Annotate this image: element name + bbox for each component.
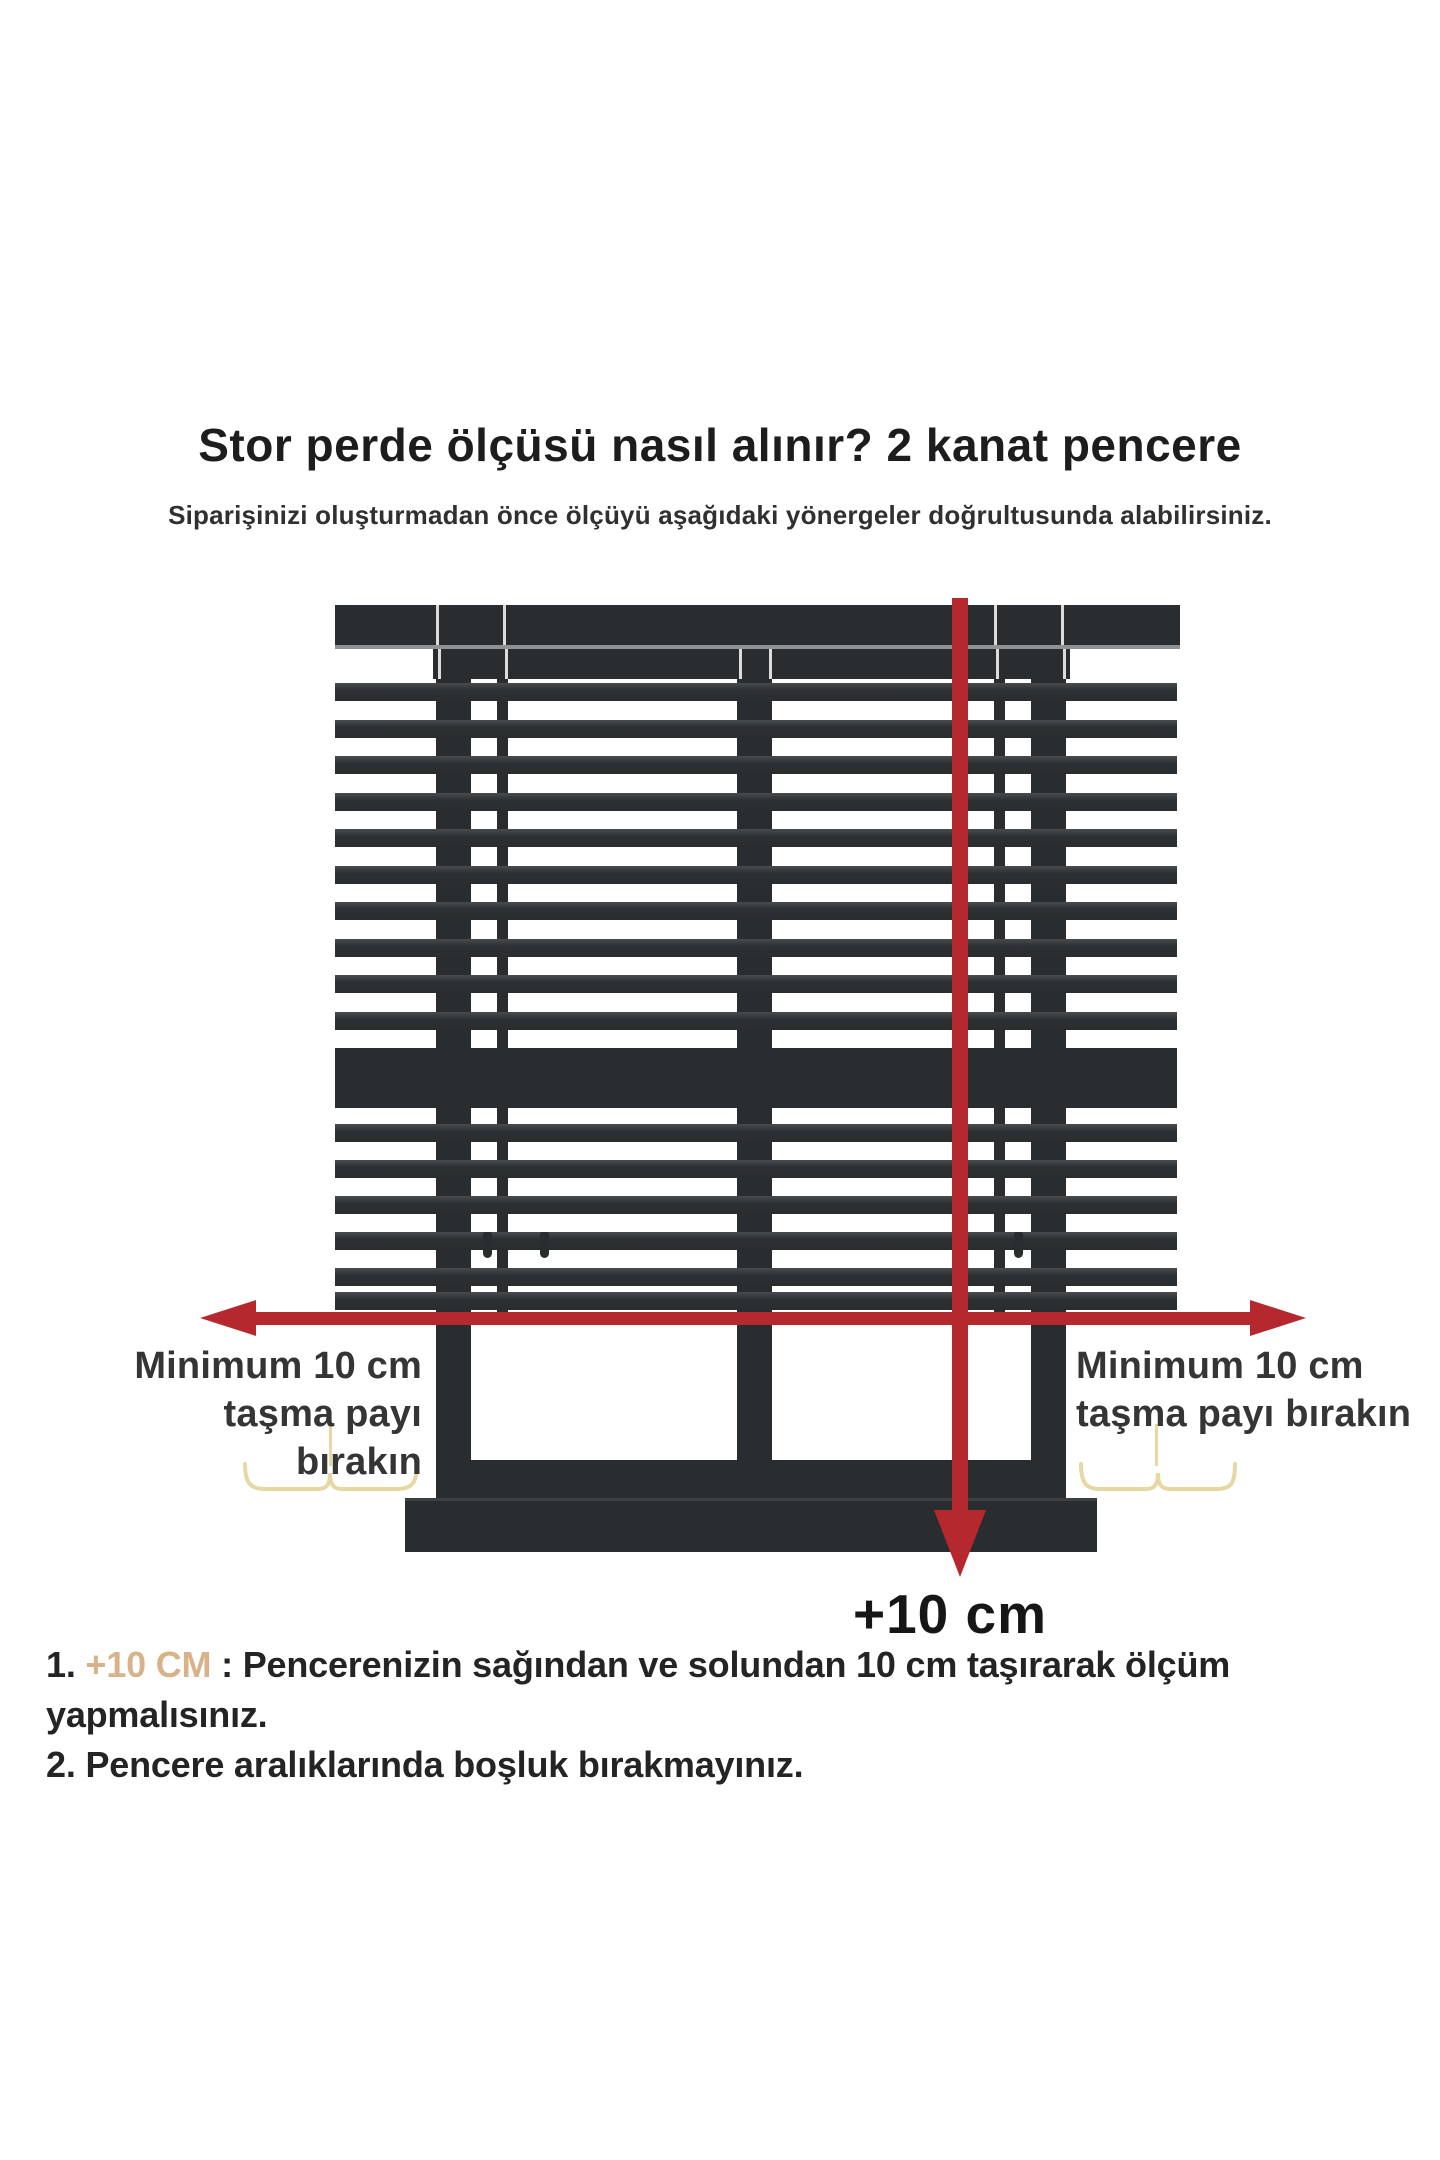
valance-slit: [994, 605, 997, 645]
blind-slat: [335, 902, 1177, 920]
blind-slat: [335, 683, 1177, 701]
blind-slat: [335, 829, 1177, 847]
note-line-1: 1. +10 CM : Pencerenizin sağından ve sol…: [46, 1640, 1416, 1740]
top-frame-slit: [769, 649, 772, 679]
blind-slat: [335, 1124, 1177, 1142]
right-overhang-label-line2: taşma payı bırakın: [1076, 1390, 1416, 1438]
blind-slat: [335, 1196, 1177, 1214]
note-1-highlight: +10 CM: [76, 1644, 212, 1685]
top-frame-slit: [739, 649, 742, 679]
note-line-2: 2. Pencere aralıklarında boşluk bırakmay…: [46, 1740, 1416, 1790]
blind-slat: [335, 1292, 1177, 1310]
height-measure-arrow: [952, 598, 968, 1512]
arrowhead-down-icon: [934, 1510, 986, 1577]
window-bottom-rail: [436, 1460, 1066, 1498]
note-2-number: 2.: [46, 1744, 76, 1785]
valance-slit: [436, 605, 439, 645]
blind-slat: [335, 939, 1177, 957]
right-overhang-label: Minimum 10 cm taşma payı bırakın: [1076, 1342, 1416, 1438]
left-overhang-label: Minimum 10 cm taşma payı bırakın: [92, 1342, 422, 1486]
valance-slit: [503, 605, 506, 645]
page-title: Stor perde ölçüsü nasıl alınır? 2 kanat …: [0, 418, 1440, 472]
top-frame-slit: [996, 649, 999, 679]
page-subtitle: Siparişinizi oluşturmadan önce ölçüyü aş…: [0, 500, 1440, 531]
top-frame-slit: [505, 649, 508, 679]
sash-meeting-rail-band: [335, 1048, 1177, 1108]
note-1-separator: :: [211, 1644, 242, 1685]
arrowhead-left-icon: [200, 1300, 256, 1336]
blind-slat: [335, 1232, 1177, 1250]
page: { "header": { "title": "Stor perde ölçüs…: [0, 0, 1440, 2160]
top-frame-slit: [438, 649, 441, 679]
blind-slat: [335, 793, 1177, 811]
blind-slat: [335, 1268, 1177, 1286]
blind-slat: [335, 720, 1177, 738]
blind-slat: [335, 1012, 1177, 1030]
slat-hook-icon: [483, 1232, 492, 1258]
top-frame-slit: [1063, 649, 1066, 679]
valance-slit: [1061, 605, 1064, 645]
note-1-number: 1.: [46, 1644, 76, 1685]
instruction-notes: 1. +10 CM : Pencerenizin sağından ve sol…: [46, 1640, 1416, 1790]
plus-10cm-label: +10 cm: [790, 1582, 1110, 1646]
left-overhang-label-line1: Minimum 10 cm: [92, 1342, 422, 1390]
blind-slat: [335, 866, 1177, 884]
window-sill: [405, 1498, 1097, 1552]
slat-hook-icon: [1014, 1232, 1023, 1258]
blind-slat: [335, 756, 1177, 774]
window-top-frame: [433, 649, 1070, 679]
note-2-text: Pencere aralıklarında boşluk bırakmayını…: [85, 1744, 803, 1785]
left-overhang-label-line2: taşma payı bırakın: [92, 1390, 422, 1486]
width-measure-arrow: [240, 1312, 1260, 1325]
slat-hook-icon: [540, 1232, 549, 1258]
arrowhead-right-icon: [1250, 1300, 1306, 1336]
right-overhang-label-line1: Minimum 10 cm: [1076, 1342, 1416, 1390]
note-2-separator: [76, 1744, 86, 1785]
blind-slat: [335, 1160, 1177, 1178]
blind-slat: [335, 975, 1177, 993]
blind-valance: [335, 605, 1180, 645]
right-overhang-brace-icon: [1078, 1458, 1238, 1498]
